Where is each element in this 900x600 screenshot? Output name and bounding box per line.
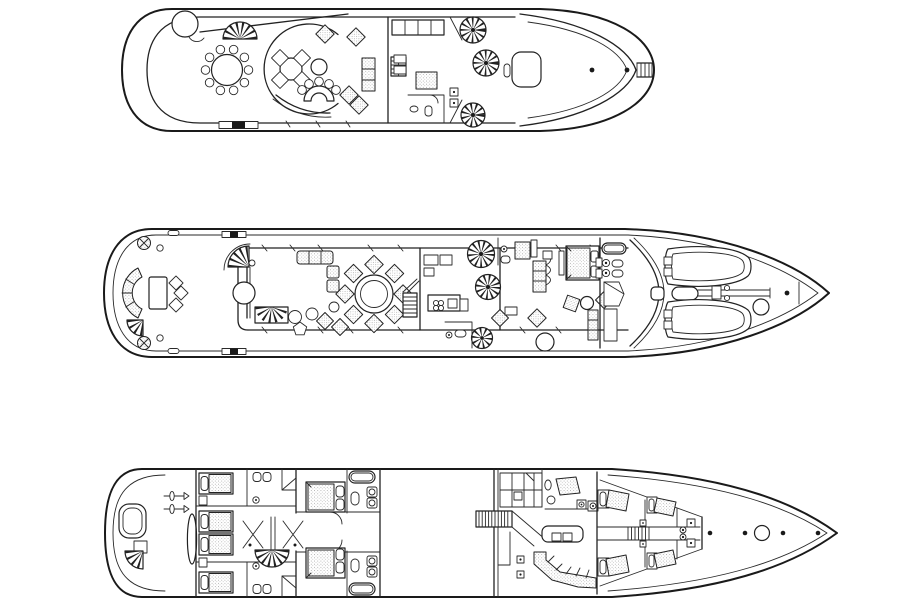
armchair [327, 266, 339, 278]
tender-lower [664, 300, 751, 340]
round-dining-table [201, 45, 253, 94]
deck-dot [625, 68, 630, 73]
settee [362, 58, 375, 91]
toilet [351, 559, 359, 572]
interior-curved-stair [224, 244, 255, 318]
aft-table-chairs [149, 276, 188, 312]
sink [545, 480, 551, 490]
crew-quarters [597, 472, 702, 594]
nightstand [199, 496, 207, 505]
cleat [168, 349, 179, 354]
guest-twin-bed [199, 511, 233, 532]
crew-mess [498, 526, 596, 588]
toilet [547, 496, 555, 504]
spiral-stair-mid [476, 275, 501, 300]
sink [410, 106, 418, 112]
vent-pill [504, 64, 510, 77]
bow-arc-inner [528, 22, 627, 118]
master-bathroom [596, 238, 626, 348]
main-deck-plan [104, 229, 829, 357]
guest-twin-bed [199, 534, 233, 555]
toilet [351, 492, 359, 505]
spiral-stair-bottom [472, 328, 493, 349]
yacht-deck-plans [0, 0, 900, 600]
toilet [612, 260, 623, 267]
shower [604, 282, 624, 306]
deck-plans-drawing [0, 0, 900, 600]
bow-inner-line [608, 475, 827, 591]
forepeak-dot [781, 531, 786, 536]
deck-circle [536, 333, 554, 351]
day-head [445, 322, 472, 348]
forepeak-dot [743, 531, 748, 536]
cleat [168, 231, 179, 236]
guest-bathroom-bottom [253, 563, 296, 597]
bow-dot [785, 291, 790, 296]
spiral-stair-bottom [461, 103, 485, 127]
transom-platform-door [119, 504, 147, 553]
store-lockers [500, 473, 542, 507]
chain-locker-circle [755, 526, 770, 541]
guest-twin-bed [199, 473, 233, 494]
bidet [612, 270, 623, 277]
armchair [327, 280, 339, 292]
sun-deck-plan [122, 9, 654, 131]
samson-post [651, 287, 664, 300]
master-king-bed [559, 246, 599, 280]
lower-fan-stair [255, 307, 288, 323]
lobby [243, 517, 303, 567]
lounge-aft-wall [273, 95, 331, 117]
stern-quarter-stairs [125, 551, 143, 569]
vip-bathroom-top [347, 469, 377, 513]
curved-aft-settee [122, 268, 142, 318]
crew-staircase [476, 511, 546, 546]
vip-queen-bed-bottom [306, 548, 345, 578]
lobby-fan-staircase [255, 550, 289, 567]
aft-quarter-stairs [127, 320, 143, 336]
lower-deck-plan [105, 469, 837, 597]
cocktail-table [311, 59, 327, 75]
chart-settee [416, 72, 437, 89]
wheelhouse [388, 17, 462, 123]
vip-bathroom-bottom [347, 551, 377, 597]
spiral-stair-top [460, 17, 486, 43]
crew-bunk [598, 555, 629, 576]
windlass-gypsies [680, 527, 686, 540]
engine-room-bulkheads [380, 469, 498, 597]
spa-circle [172, 11, 204, 42]
round-hall-table [233, 282, 255, 304]
salon-sofa [297, 251, 333, 264]
rudder-skeg [187, 514, 196, 564]
boarding-gate-marker [219, 122, 258, 129]
crew-bunk [598, 490, 629, 511]
nightstand [199, 558, 207, 567]
guest-twin-bed [199, 572, 233, 593]
spiral-stair-top [468, 241, 495, 268]
guest-bathroom-top [253, 469, 296, 503]
fan-staircase [223, 22, 257, 39]
crew-mess-table [542, 526, 583, 542]
companionway-ladder [628, 527, 649, 540]
forepeak [708, 526, 821, 541]
toilet [425, 106, 432, 116]
propellers [164, 491, 197, 564]
crew-bunk [647, 497, 676, 516]
dining-table-eight-chairs [336, 255, 412, 332]
deck-dot [590, 68, 595, 73]
tender-upper [664, 247, 751, 287]
forepeak-dot [708, 531, 713, 536]
deck-ticks [286, 121, 350, 127]
vip-queen-bed-top [306, 482, 345, 512]
crew-bunk [647, 550, 676, 569]
mid-staircase [403, 279, 419, 317]
crew-mess-diagonal-bench [534, 552, 596, 588]
bow-ladder [637, 63, 652, 77]
forepeak-dot [816, 531, 821, 536]
spiral-stair-mid [473, 50, 499, 76]
sun-roof-hatch [512, 52, 541, 87]
